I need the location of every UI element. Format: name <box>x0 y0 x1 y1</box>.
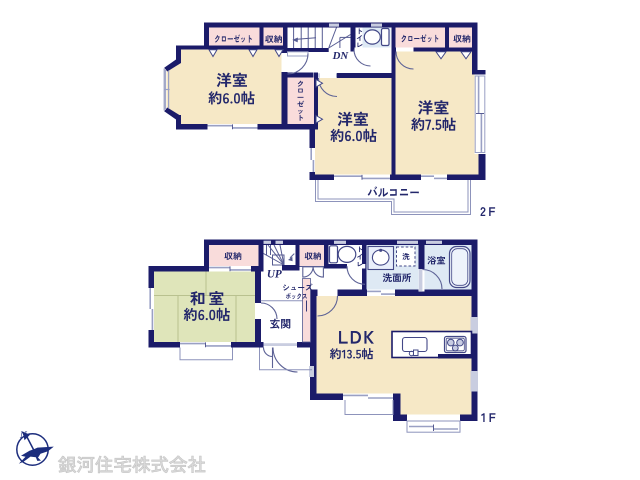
svg-text:N: N <box>19 431 28 441</box>
svg-text:DN: DN <box>332 50 350 62</box>
svg-text:UP: UP <box>267 269 282 281</box>
